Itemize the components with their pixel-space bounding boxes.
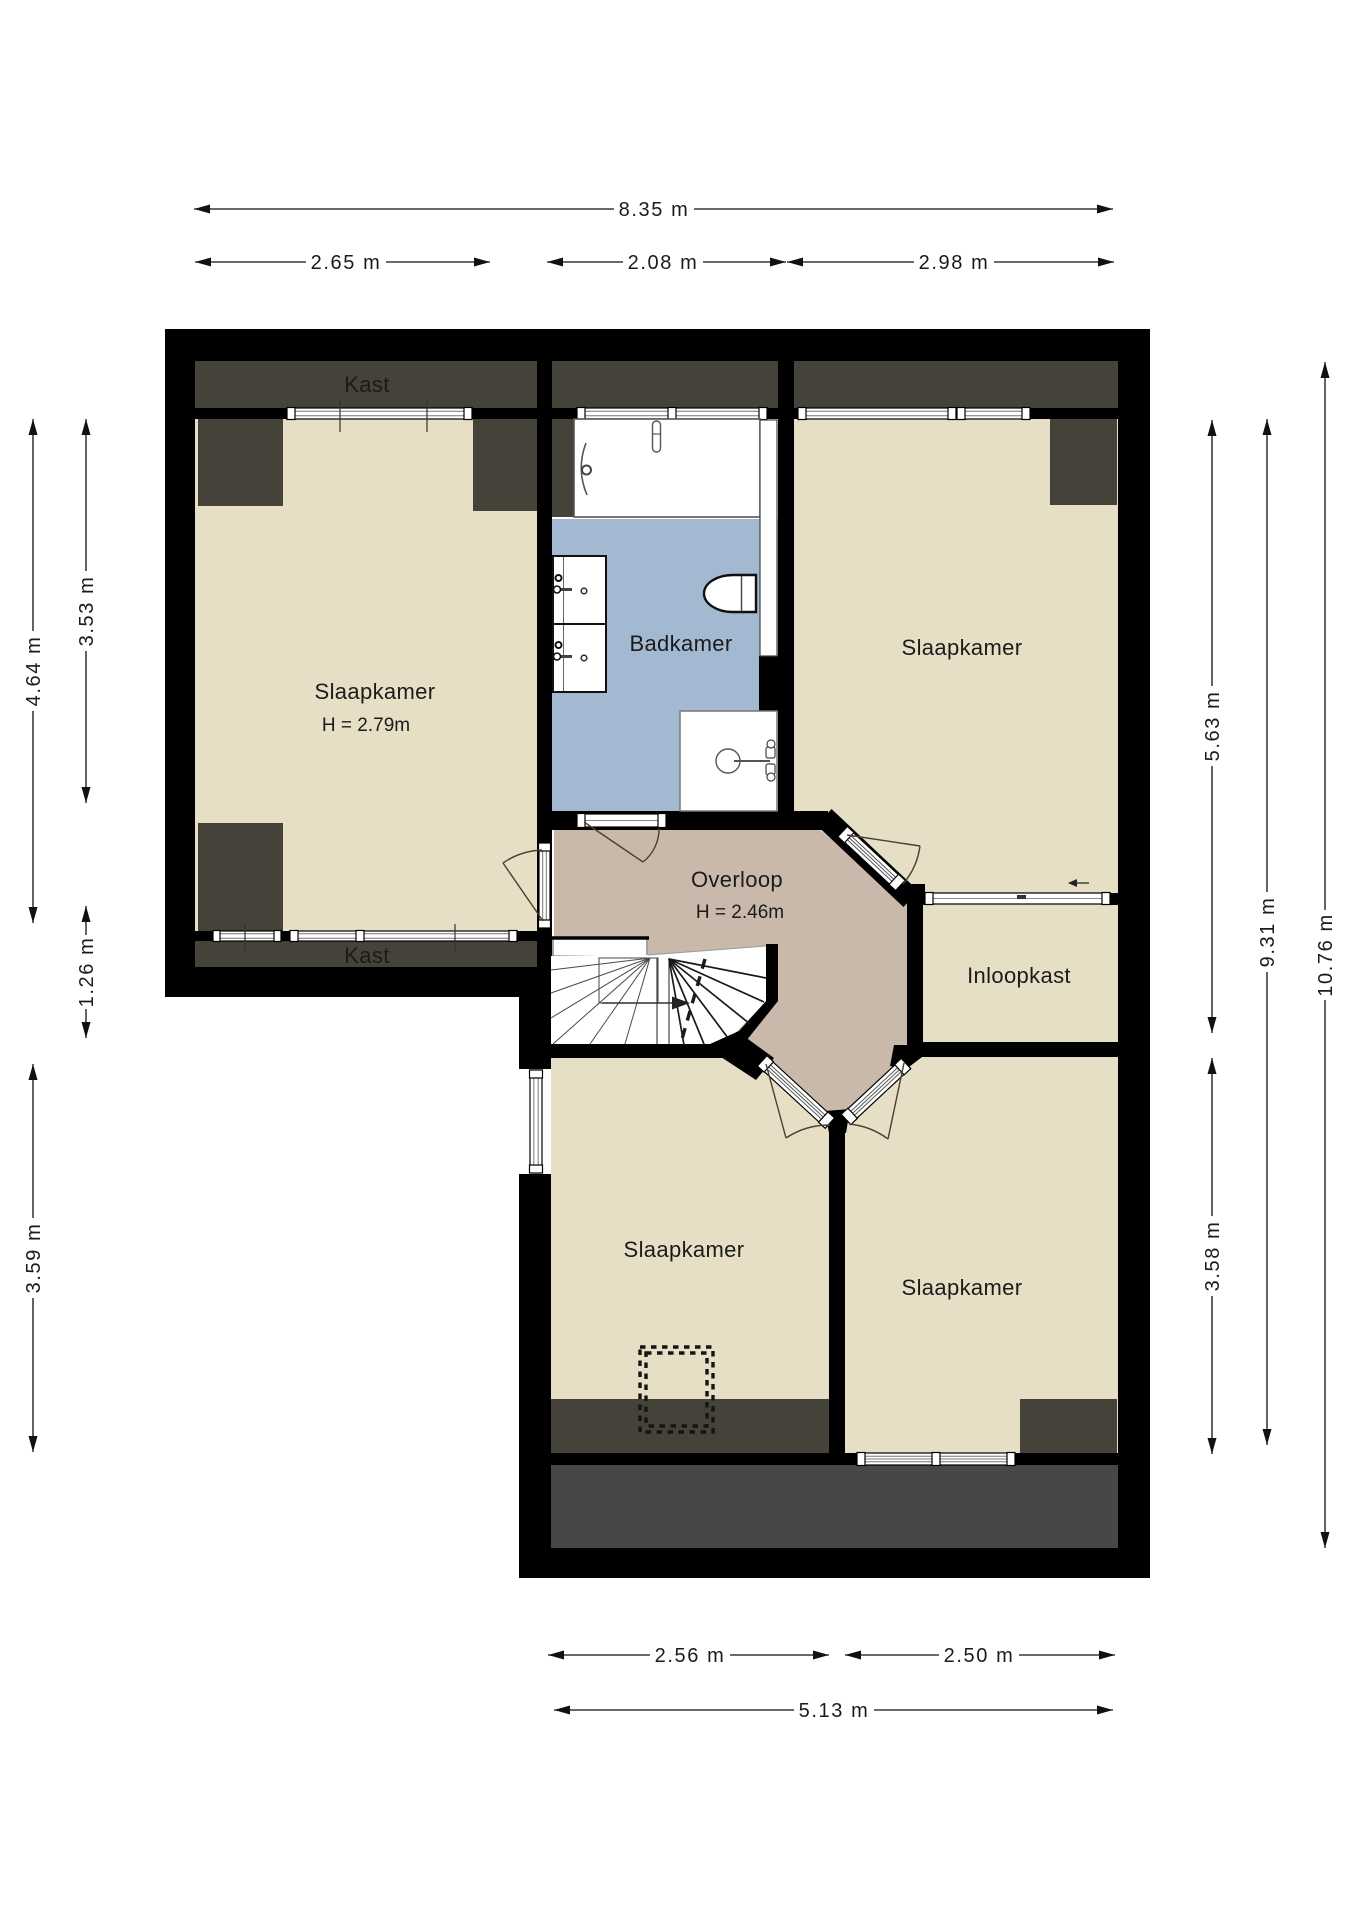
- svg-text:1.26 m: 1.26 m: [76, 937, 98, 1008]
- svg-text:2.50 m: 2.50 m: [944, 1645, 1015, 1667]
- svg-text:Inloopkast: Inloopkast: [967, 963, 1071, 988]
- svg-text:Badkamer: Badkamer: [629, 631, 732, 656]
- svg-text:9.31 m: 9.31 m: [1257, 897, 1279, 968]
- svg-text:3.59 m: 3.59 m: [23, 1223, 45, 1294]
- svg-text:Kast: Kast: [344, 372, 389, 397]
- svg-text:3.58 m: 3.58 m: [1202, 1221, 1224, 1292]
- svg-text:2.98 m: 2.98 m: [919, 252, 990, 274]
- svg-text:H = 2.79m: H = 2.79m: [322, 715, 410, 736]
- svg-text:3.53 m: 3.53 m: [76, 576, 98, 647]
- svg-text:Slaapkamer: Slaapkamer: [624, 1237, 745, 1262]
- svg-text:2.08 m: 2.08 m: [628, 252, 699, 274]
- svg-text:2.56 m: 2.56 m: [655, 1645, 726, 1667]
- svg-text:8.35 m: 8.35 m: [619, 199, 690, 221]
- svg-text:Slaapkamer: Slaapkamer: [902, 635, 1023, 660]
- svg-text:Slaapkamer: Slaapkamer: [902, 1275, 1023, 1300]
- svg-text:4.64 m: 4.64 m: [23, 636, 45, 707]
- svg-text:5.63 m: 5.63 m: [1202, 691, 1224, 762]
- svg-text:5.13 m: 5.13 m: [799, 1700, 870, 1722]
- svg-text:H = 2.46m: H = 2.46m: [696, 902, 784, 923]
- svg-text:2.65 m: 2.65 m: [311, 252, 382, 274]
- svg-text:Kast: Kast: [344, 943, 389, 968]
- svg-text:Slaapkamer: Slaapkamer: [315, 679, 436, 704]
- svg-text:Overloop: Overloop: [691, 867, 783, 892]
- svg-text:10.76 m: 10.76 m: [1315, 913, 1337, 996]
